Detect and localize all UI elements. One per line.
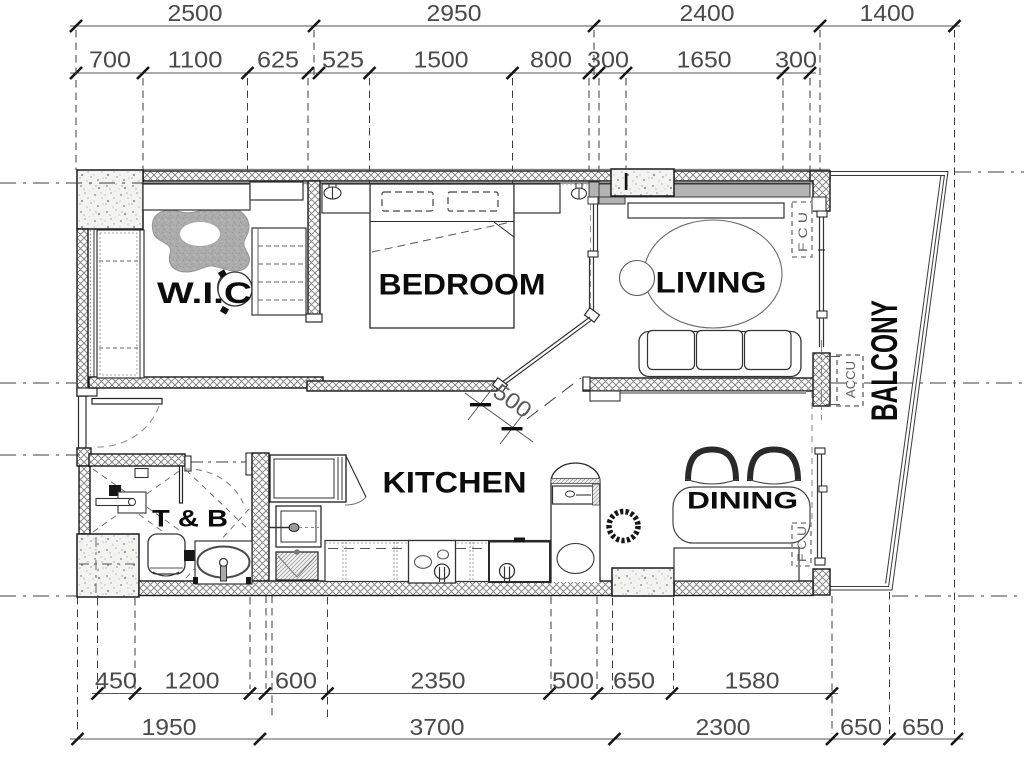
svg-text:1500: 1500 — [414, 47, 469, 73]
svg-text:450: 450 — [95, 668, 137, 694]
svg-text:2950: 2950 — [427, 0, 482, 26]
svg-text:1400: 1400 — [860, 0, 915, 26]
svg-text:300: 300 — [587, 47, 629, 73]
svg-text:2300: 2300 — [696, 714, 751, 740]
svg-text:500: 500 — [552, 668, 594, 694]
svg-text:F C U: F C U — [796, 212, 810, 252]
svg-text:T & B: T & B — [152, 506, 228, 533]
svg-text:650: 650 — [613, 668, 655, 694]
svg-text:800: 800 — [530, 47, 572, 73]
svg-text:F C U: F C U — [795, 526, 809, 562]
svg-text:1650: 1650 — [677, 47, 732, 73]
svg-text:625: 625 — [257, 47, 299, 73]
svg-text:DINING: DINING — [687, 488, 798, 515]
svg-text:650: 650 — [840, 714, 882, 740]
svg-text:BALCONY: BALCONY — [864, 300, 905, 421]
svg-text:2500: 2500 — [168, 0, 223, 26]
svg-text:KITCHEN: KITCHEN — [383, 467, 527, 500]
svg-text:BEDROOM: BEDROOM — [379, 269, 546, 302]
svg-text:525: 525 — [322, 47, 364, 73]
svg-text:LIVING: LIVING — [656, 267, 767, 300]
svg-text:2400: 2400 — [680, 0, 735, 26]
svg-text:650: 650 — [902, 714, 944, 740]
svg-text:300: 300 — [775, 47, 817, 73]
svg-text:3700: 3700 — [410, 714, 465, 740]
svg-text:1580: 1580 — [725, 668, 780, 694]
svg-text:1950: 1950 — [142, 714, 197, 740]
svg-text:1100: 1100 — [168, 47, 223, 73]
svg-text:2350: 2350 — [411, 668, 466, 694]
svg-text:600: 600 — [275, 668, 317, 694]
svg-text:ACCU: ACCU — [843, 361, 858, 398]
svg-text:1200: 1200 — [165, 668, 220, 694]
svg-text:W.I.C: W.I.C — [157, 277, 252, 310]
svg-text:700: 700 — [89, 47, 131, 73]
